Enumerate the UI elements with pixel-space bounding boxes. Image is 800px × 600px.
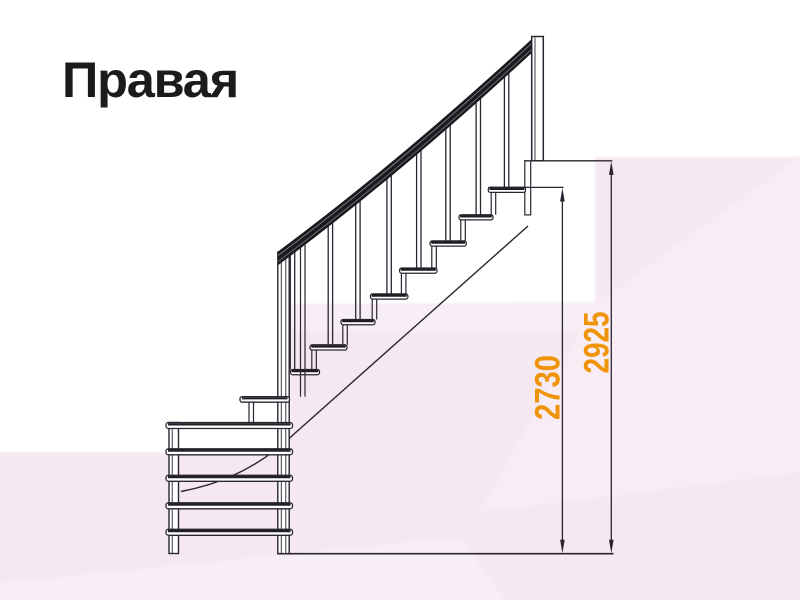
svg-text:2730: 2730 (529, 355, 568, 420)
svg-text:Правая: Правая (62, 51, 238, 108)
svg-text:2925: 2925 (577, 312, 616, 374)
